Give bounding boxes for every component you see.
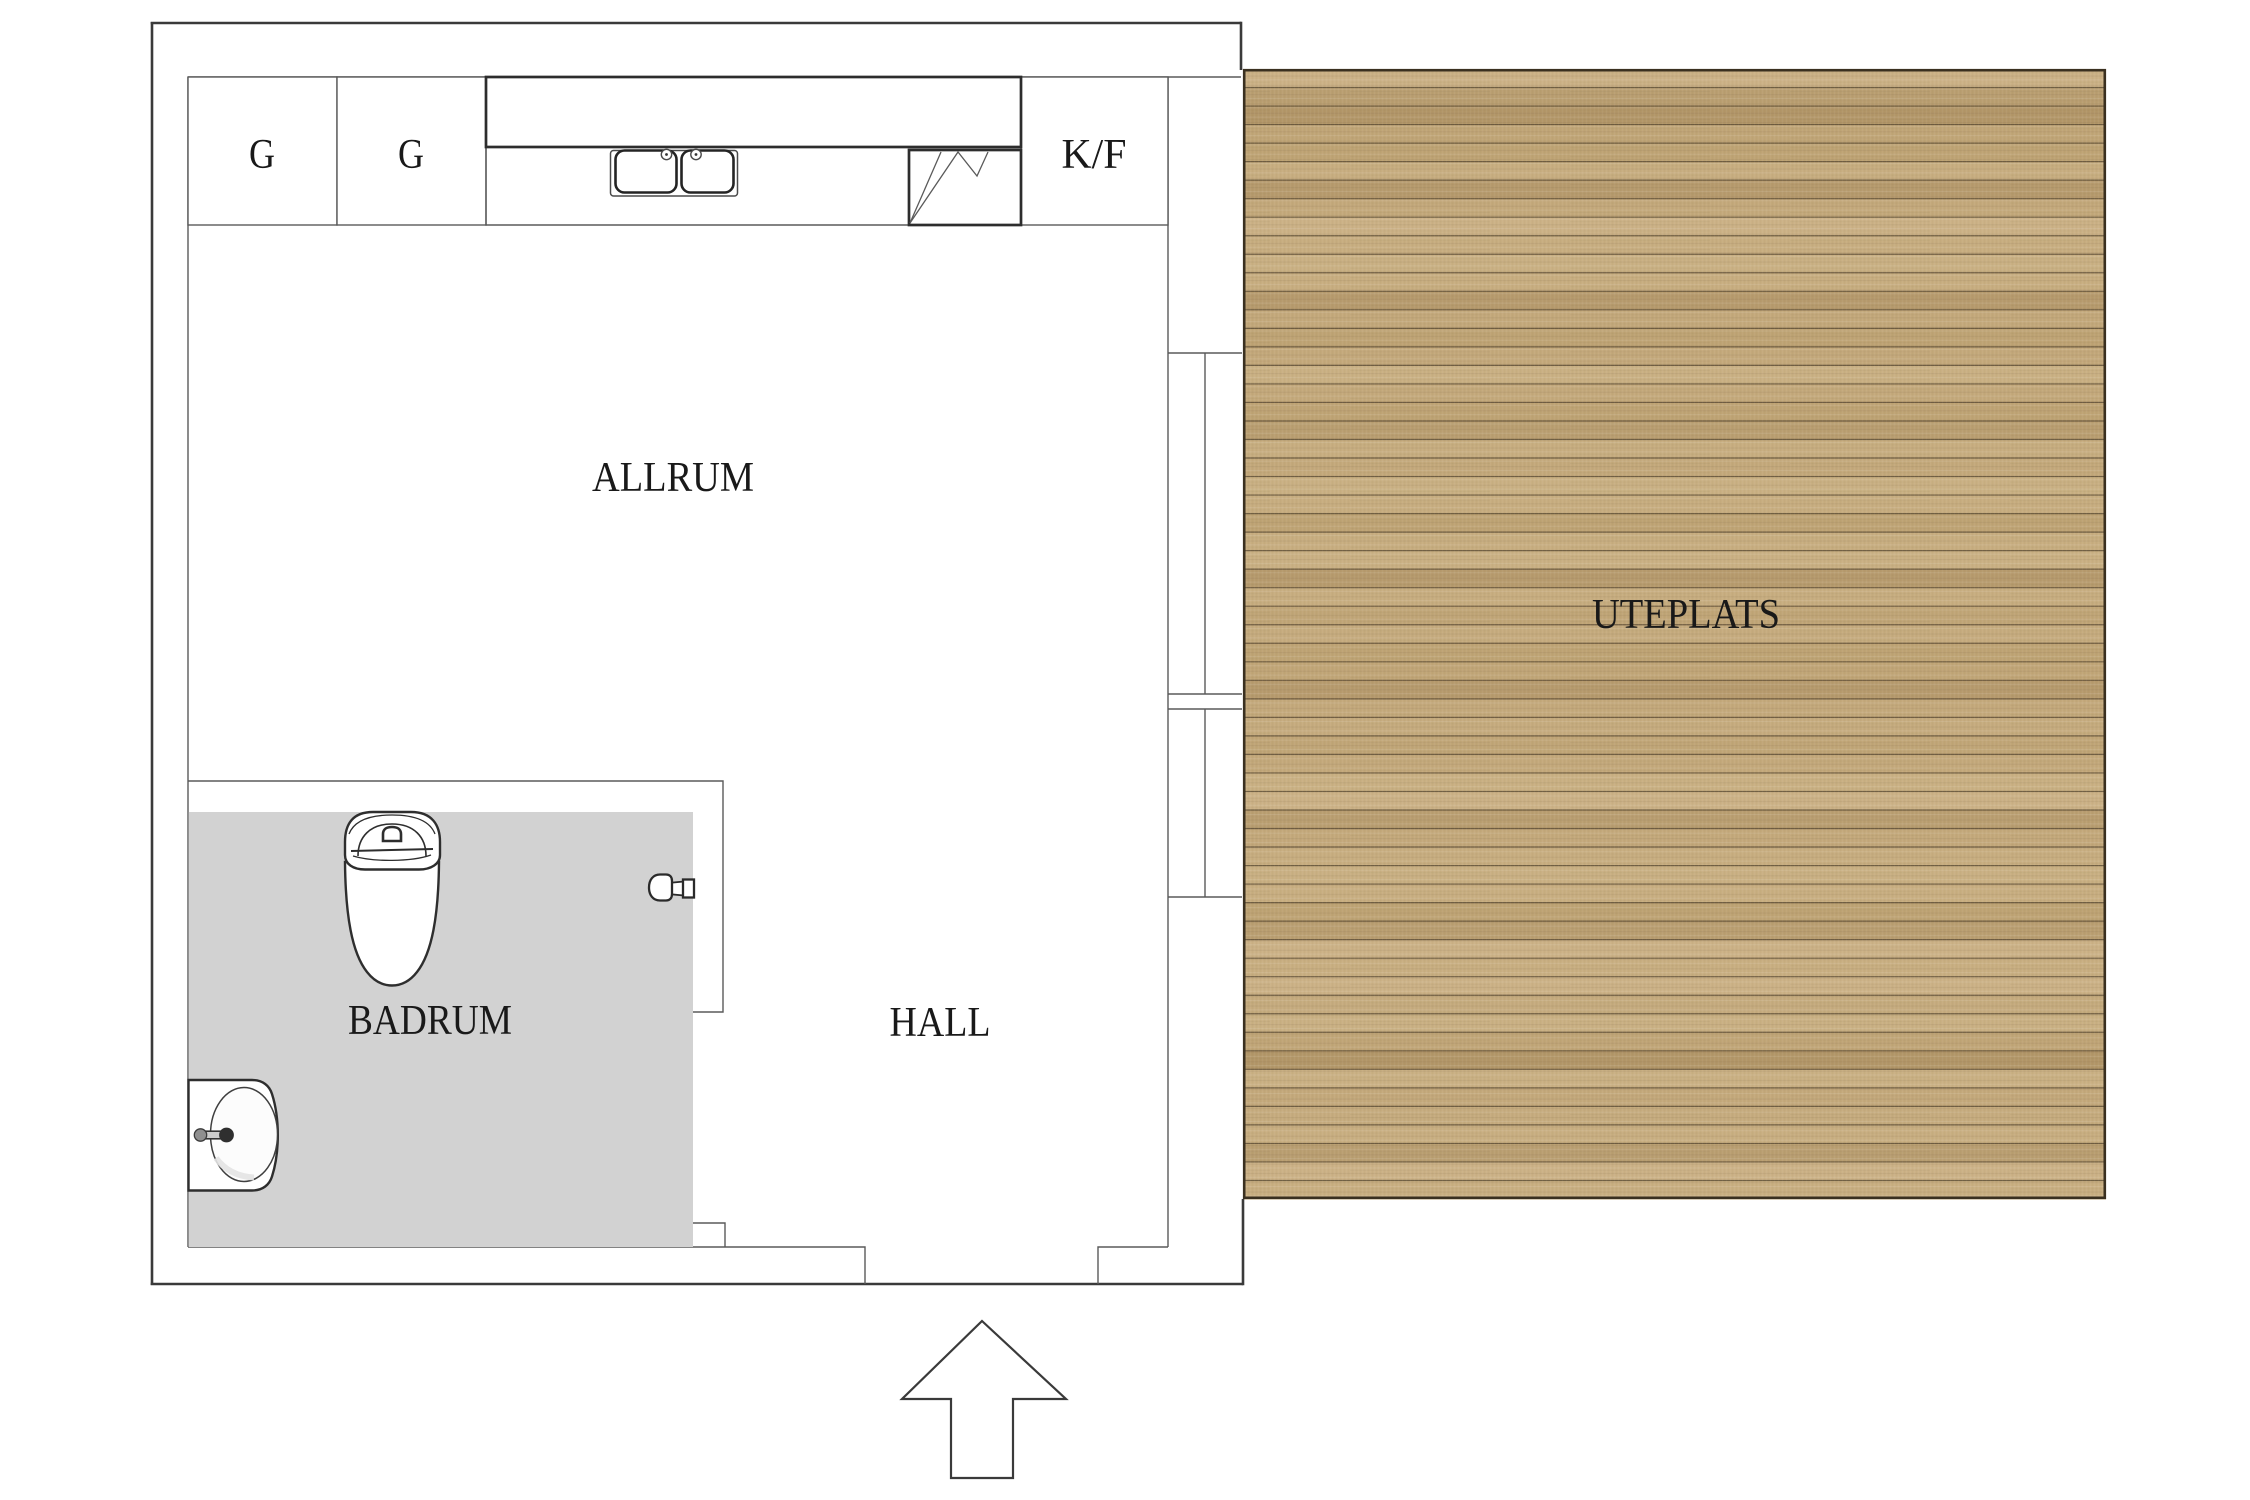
- svg-text:ALLRUM: ALLRUM: [592, 455, 754, 501]
- svg-text:UTEPLATS: UTEPLATS: [1592, 592, 1780, 638]
- svg-text:HALL: HALL: [890, 1000, 991, 1046]
- svg-text:G: G: [398, 132, 424, 178]
- svg-text:K/F: K/F: [1062, 132, 1127, 178]
- svg-text:G: G: [249, 132, 275, 178]
- svg-text:BADRUM: BADRUM: [348, 998, 512, 1044]
